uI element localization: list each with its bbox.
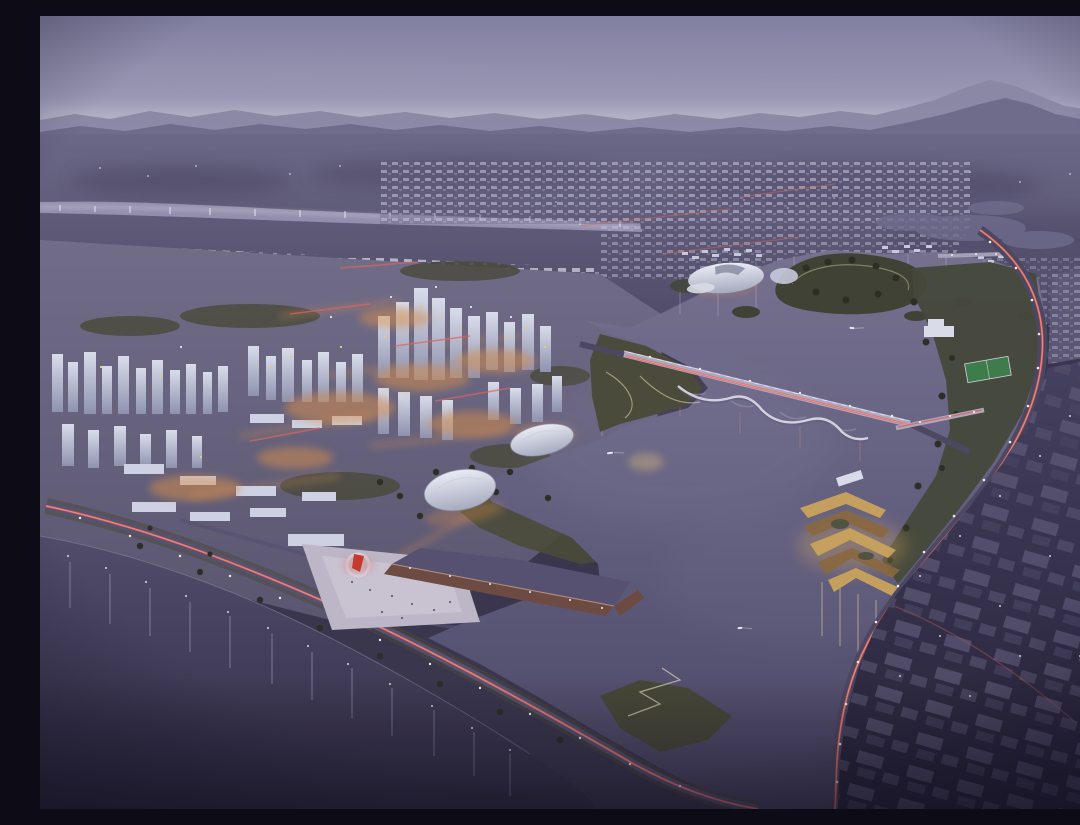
vignette-overlay xyxy=(40,16,1080,809)
rendering-canvas xyxy=(40,16,1080,809)
aerial-city-rendering xyxy=(40,16,1080,809)
